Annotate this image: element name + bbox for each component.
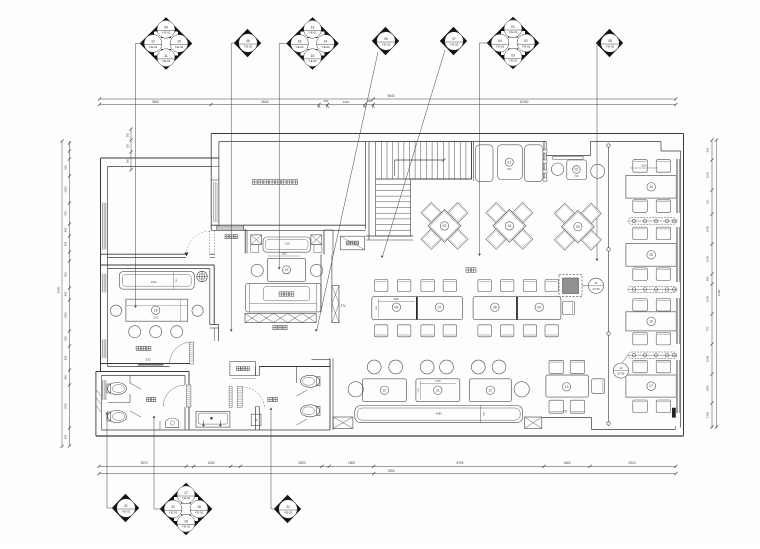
svg-text:Y-E-02: Y-E-02 [244,44,253,48]
svg-text:08: 08 [608,39,612,43]
svg-text:Y-E-01: Y-E-01 [162,31,171,35]
svg-text:TV: TV [563,410,568,414]
svg-text:Y-E-02: Y-E-02 [606,44,615,48]
svg-text:Y-E-02: Y-E-02 [382,42,391,46]
svg-text:2820: 2820 [298,461,305,465]
svg-text:05: 05 [384,37,388,41]
svg-text:18: 18 [154,308,158,312]
svg-text:700: 700 [64,211,68,216]
svg-text:Y-E-02: Y-E-02 [122,509,131,513]
svg-text:QT-06: QT-06 [592,287,600,291]
svg-text:10: 10 [177,40,181,44]
svg-text:1500: 1500 [281,254,287,256]
svg-text:Y-E-01: Y-E-01 [195,510,204,514]
svg-text:280: 280 [367,99,372,103]
svg-text:300: 300 [127,132,130,137]
svg-text:3640: 3640 [261,100,268,104]
svg-text:1020: 1020 [64,312,68,318]
svg-text:280: 280 [324,99,329,103]
svg-text:2030: 2030 [64,186,68,192]
svg-text:10260: 10260 [520,100,529,104]
svg-text:800: 800 [64,355,68,360]
svg-text:9600: 9600 [57,286,61,293]
svg-text:950: 950 [64,272,68,277]
svg-text:16: 16 [298,40,302,44]
svg-text:14: 14 [324,40,328,44]
svg-text:Y-E-01: Y-E-01 [149,45,158,49]
svg-text:560: 560 [706,147,710,152]
svg-text:04: 04 [508,224,512,228]
svg-text:3640: 3640 [152,100,159,104]
svg-text:03: 03 [511,53,515,57]
svg-text:08: 08 [493,305,497,309]
svg-text:04: 04 [498,39,502,43]
svg-text:Y-E-01: Y-E-01 [321,45,330,49]
svg-text:2670: 2670 [140,461,147,465]
svg-text:1530: 1530 [706,171,710,178]
svg-text:400: 400 [64,291,68,296]
svg-text:500: 500 [127,158,130,163]
svg-text:15: 15 [649,253,653,257]
svg-text:2100: 2100 [153,317,159,320]
svg-text:1530: 1530 [706,225,710,232]
svg-text:500: 500 [64,336,68,341]
svg-text:13: 13 [311,26,315,30]
svg-text:600: 600 [64,434,68,439]
svg-text:2540: 2540 [151,281,157,284]
svg-text:530: 530 [127,143,130,148]
svg-text:1500: 1500 [641,165,647,168]
svg-text:21: 21 [124,504,128,508]
svg-text:2910: 2910 [628,461,635,465]
svg-text:17: 17 [184,491,188,495]
svg-text:01: 01 [507,160,511,164]
svg-text:Y-E-01: Y-E-01 [308,59,317,63]
svg-text:19: 19 [285,268,289,272]
svg-text:07: 07 [452,37,456,41]
svg-text:1300: 1300 [706,385,710,392]
svg-text:05: 05 [576,225,580,229]
svg-text:5790: 5790 [456,461,463,465]
svg-text:Y-E-01: Y-E-01 [522,44,531,48]
svg-text:07: 07 [438,305,442,309]
svg-text:12: 12 [151,40,155,44]
svg-text:18: 18 [197,505,201,509]
svg-text:1530: 1530 [706,295,710,302]
svg-text:Y-E-01: Y-E-01 [169,510,178,514]
svg-text:Y-E-02: Y-E-02 [284,510,293,514]
svg-text:1430: 1430 [64,403,68,409]
svg-text:1660: 1660 [563,461,570,465]
svg-text:390: 390 [706,276,710,281]
svg-text:Y-E-01: Y-E-01 [182,496,191,500]
svg-text:1220: 1220 [343,100,350,104]
svg-text:600: 600 [507,168,512,171]
svg-text:Y-E-01: Y-E-01 [295,45,304,49]
svg-text:11: 11 [594,281,597,285]
svg-text:5485: 5485 [436,412,442,416]
svg-text:Y-E-01: Y-E-01 [308,31,317,35]
svg-text:10: 10 [619,366,623,370]
svg-text:1500: 1500 [393,298,399,301]
svg-text:01: 01 [511,25,515,29]
svg-text:TV: TV [145,357,150,362]
svg-text:22: 22 [286,505,290,509]
svg-text:02: 02 [524,39,528,43]
svg-text:06: 06 [395,305,399,309]
svg-text:1400: 1400 [435,380,441,383]
svg-text:1720: 1720 [284,243,290,246]
svg-text:500: 500 [64,241,68,246]
svg-text:09: 09 [537,305,541,309]
svg-text:Y-E-02: Y-E-02 [450,42,459,46]
svg-text:20: 20 [171,505,175,509]
svg-text:4700: 4700 [717,289,721,296]
svg-text:Y-E-01: Y-E-01 [182,525,191,529]
svg-text:16: 16 [649,320,653,324]
svg-text:13: 13 [565,385,569,389]
svg-text:09: 09 [164,26,168,30]
svg-text:1300: 1300 [706,411,710,418]
svg-text:Y-E-01: Y-E-01 [509,30,518,34]
svg-text:Y-E-01: Y-E-01 [509,59,518,63]
svg-text:03: 03 [443,224,447,228]
svg-text:1260: 1260 [207,461,214,465]
svg-text:10: 10 [383,388,387,392]
svg-text:15: 15 [311,54,315,58]
svg-text:1540: 1540 [706,355,710,362]
svg-text:06: 06 [246,39,250,43]
svg-text:11: 11 [164,54,168,58]
svg-text:12: 12 [488,388,492,392]
svg-text:Y-E-01: Y-E-01 [175,45,184,49]
svg-text:500: 500 [64,375,68,380]
svg-text:1500: 1500 [348,461,355,465]
svg-text:720: 720 [706,199,710,204]
svg-text:17: 17 [649,384,653,388]
svg-text:Y-E-01: Y-E-01 [162,59,171,63]
svg-text:QT-06: QT-06 [617,372,625,376]
svg-text:1530: 1530 [706,255,710,262]
svg-text:TV: TV [340,303,345,308]
svg-text:Y-E-01: Y-E-01 [496,44,505,48]
svg-text:400: 400 [64,227,68,232]
svg-text:14: 14 [649,185,653,189]
svg-text:530: 530 [64,165,68,170]
svg-text:770: 770 [706,326,710,331]
svg-text:9640: 9640 [387,94,394,98]
svg-text:11: 11 [436,388,440,392]
svg-text:7600: 7600 [387,469,394,473]
svg-text:19: 19 [184,519,188,523]
svg-text:700: 700 [574,175,579,178]
svg-text:02: 02 [575,168,579,172]
